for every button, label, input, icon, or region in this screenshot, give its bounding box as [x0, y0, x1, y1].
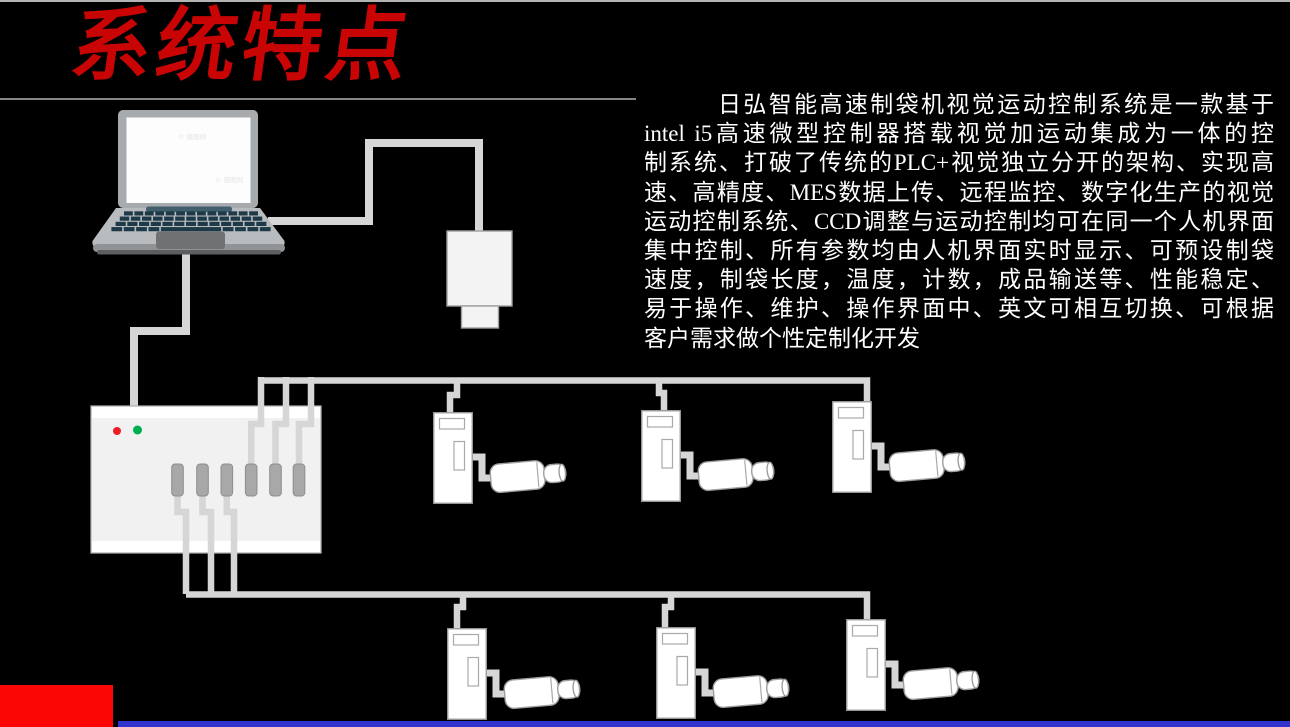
servo-motor-top-1 [490, 458, 567, 493]
keyboard-key [260, 227, 271, 231]
keyboard-key [145, 211, 154, 215]
servo-drive-bottom-2 [657, 628, 696, 719]
laptop-bottom-edge [97, 250, 281, 255]
keyboard-key [208, 217, 217, 221]
servo-motor-top-2 [698, 456, 775, 491]
controller-bottom-strip [92, 541, 320, 552]
controller-led-red [113, 427, 121, 435]
keyboard-key [136, 227, 147, 231]
keyboard-key [256, 222, 266, 226]
drop-to-bottom-drive-2 [665, 595, 671, 631]
keyboard-key [249, 211, 258, 215]
laptop-trackpad [156, 232, 225, 250]
red-accent-block [0, 685, 113, 727]
keyboard-key [111, 227, 122, 231]
keyboard-key [131, 217, 140, 221]
keyboard-key [127, 222, 137, 226]
vision-camera [447, 231, 512, 328]
keyboard-key [235, 227, 246, 231]
servo-motor-bottom-1 [504, 674, 581, 709]
controller-port-2 [197, 464, 209, 496]
laptop-screen [127, 118, 251, 204]
footer-bar [118, 721, 1290, 727]
servo-motor-bottom-3 [903, 665, 980, 700]
servo-drive-bottom-1 [448, 629, 487, 720]
keyboard-key [120, 217, 129, 221]
servo-drive-top-3 [833, 402, 872, 493]
controller-led-green [133, 426, 142, 435]
cable-laptop-to-controller [134, 250, 186, 410]
keyboard-key [134, 211, 143, 215]
drop-to-top-drive-2 [659, 380, 664, 413]
servo-drive-top-1 [434, 413, 473, 504]
keyboard-key [239, 211, 248, 215]
controller-port-1 [172, 464, 184, 496]
keyboard-key [142, 217, 151, 221]
controller-port-3 [221, 464, 233, 496]
keyboard-key [221, 222, 231, 226]
stock-watermark: © 摄图网 [178, 132, 206, 141]
presentation-slide: 系统特点 日弘智能高速制袋机视觉运动控制系统是一款基于 intel i5高速微型… [0, 0, 1290, 727]
keyboard-key [166, 211, 175, 215]
controller-port-4 [245, 464, 257, 496]
keyboard-key [228, 211, 237, 215]
keyboard-key [233, 222, 243, 226]
keyboard-key [218, 211, 227, 215]
keyboard-key [231, 217, 240, 221]
controller-port-5 [270, 464, 282, 496]
laptop-illustration: © 摄图网 © 摄图网 [92, 110, 285, 255]
keyboard-key [161, 227, 221, 231]
drop-to-bottom-drive-1 [457, 595, 463, 632]
keyboard-key [174, 222, 184, 226]
keyboard-key [116, 222, 126, 226]
keyboard-key [219, 217, 228, 221]
controller-port-6 [293, 464, 305, 496]
servo-motor-bottom-2 [713, 673, 790, 708]
top-bus-cable [251, 377, 867, 470]
keyboard-key [223, 227, 234, 231]
keyboard-key [155, 211, 164, 215]
stock-watermark: © 摄图网 [215, 175, 243, 184]
drop-to-top-drive-1 [450, 380, 457, 415]
servo-drive-bottom-3 [847, 620, 886, 711]
keyboard-key [186, 222, 196, 226]
keyboard-key [186, 217, 195, 221]
keyboard-key [198, 222, 208, 226]
keyboard-key [162, 222, 172, 226]
keyboard-key [207, 211, 216, 215]
keyboard-key [209, 222, 219, 226]
keyboard-key [151, 222, 161, 226]
keyboard-key [139, 222, 149, 226]
cable-laptop-to-camera [268, 143, 479, 232]
laptop-hinge [146, 207, 232, 213]
keyboard-key [247, 227, 258, 231]
keyboard-key [176, 211, 185, 215]
camera-body [447, 231, 512, 306]
keyboard-key [187, 211, 196, 215]
camera-lens-mount [462, 306, 499, 328]
keyboard-key [197, 217, 206, 221]
keyboard-key [149, 227, 160, 231]
keyboard-key [242, 217, 251, 221]
system-wiring-diagram: © 摄图网 © 摄图网 [0, 0, 1290, 727]
keyboard-key [253, 217, 262, 221]
keyboard-key [124, 211, 133, 215]
keyboard-key [124, 227, 135, 231]
servo-drive-top-2 [642, 411, 681, 502]
keyboard-key [153, 217, 162, 221]
servo-motor-top-3 [889, 447, 966, 482]
keyboard-key [175, 217, 184, 221]
keyboard-key [245, 222, 255, 226]
keyboard-key [164, 217, 173, 221]
keyboard-key [197, 211, 206, 215]
